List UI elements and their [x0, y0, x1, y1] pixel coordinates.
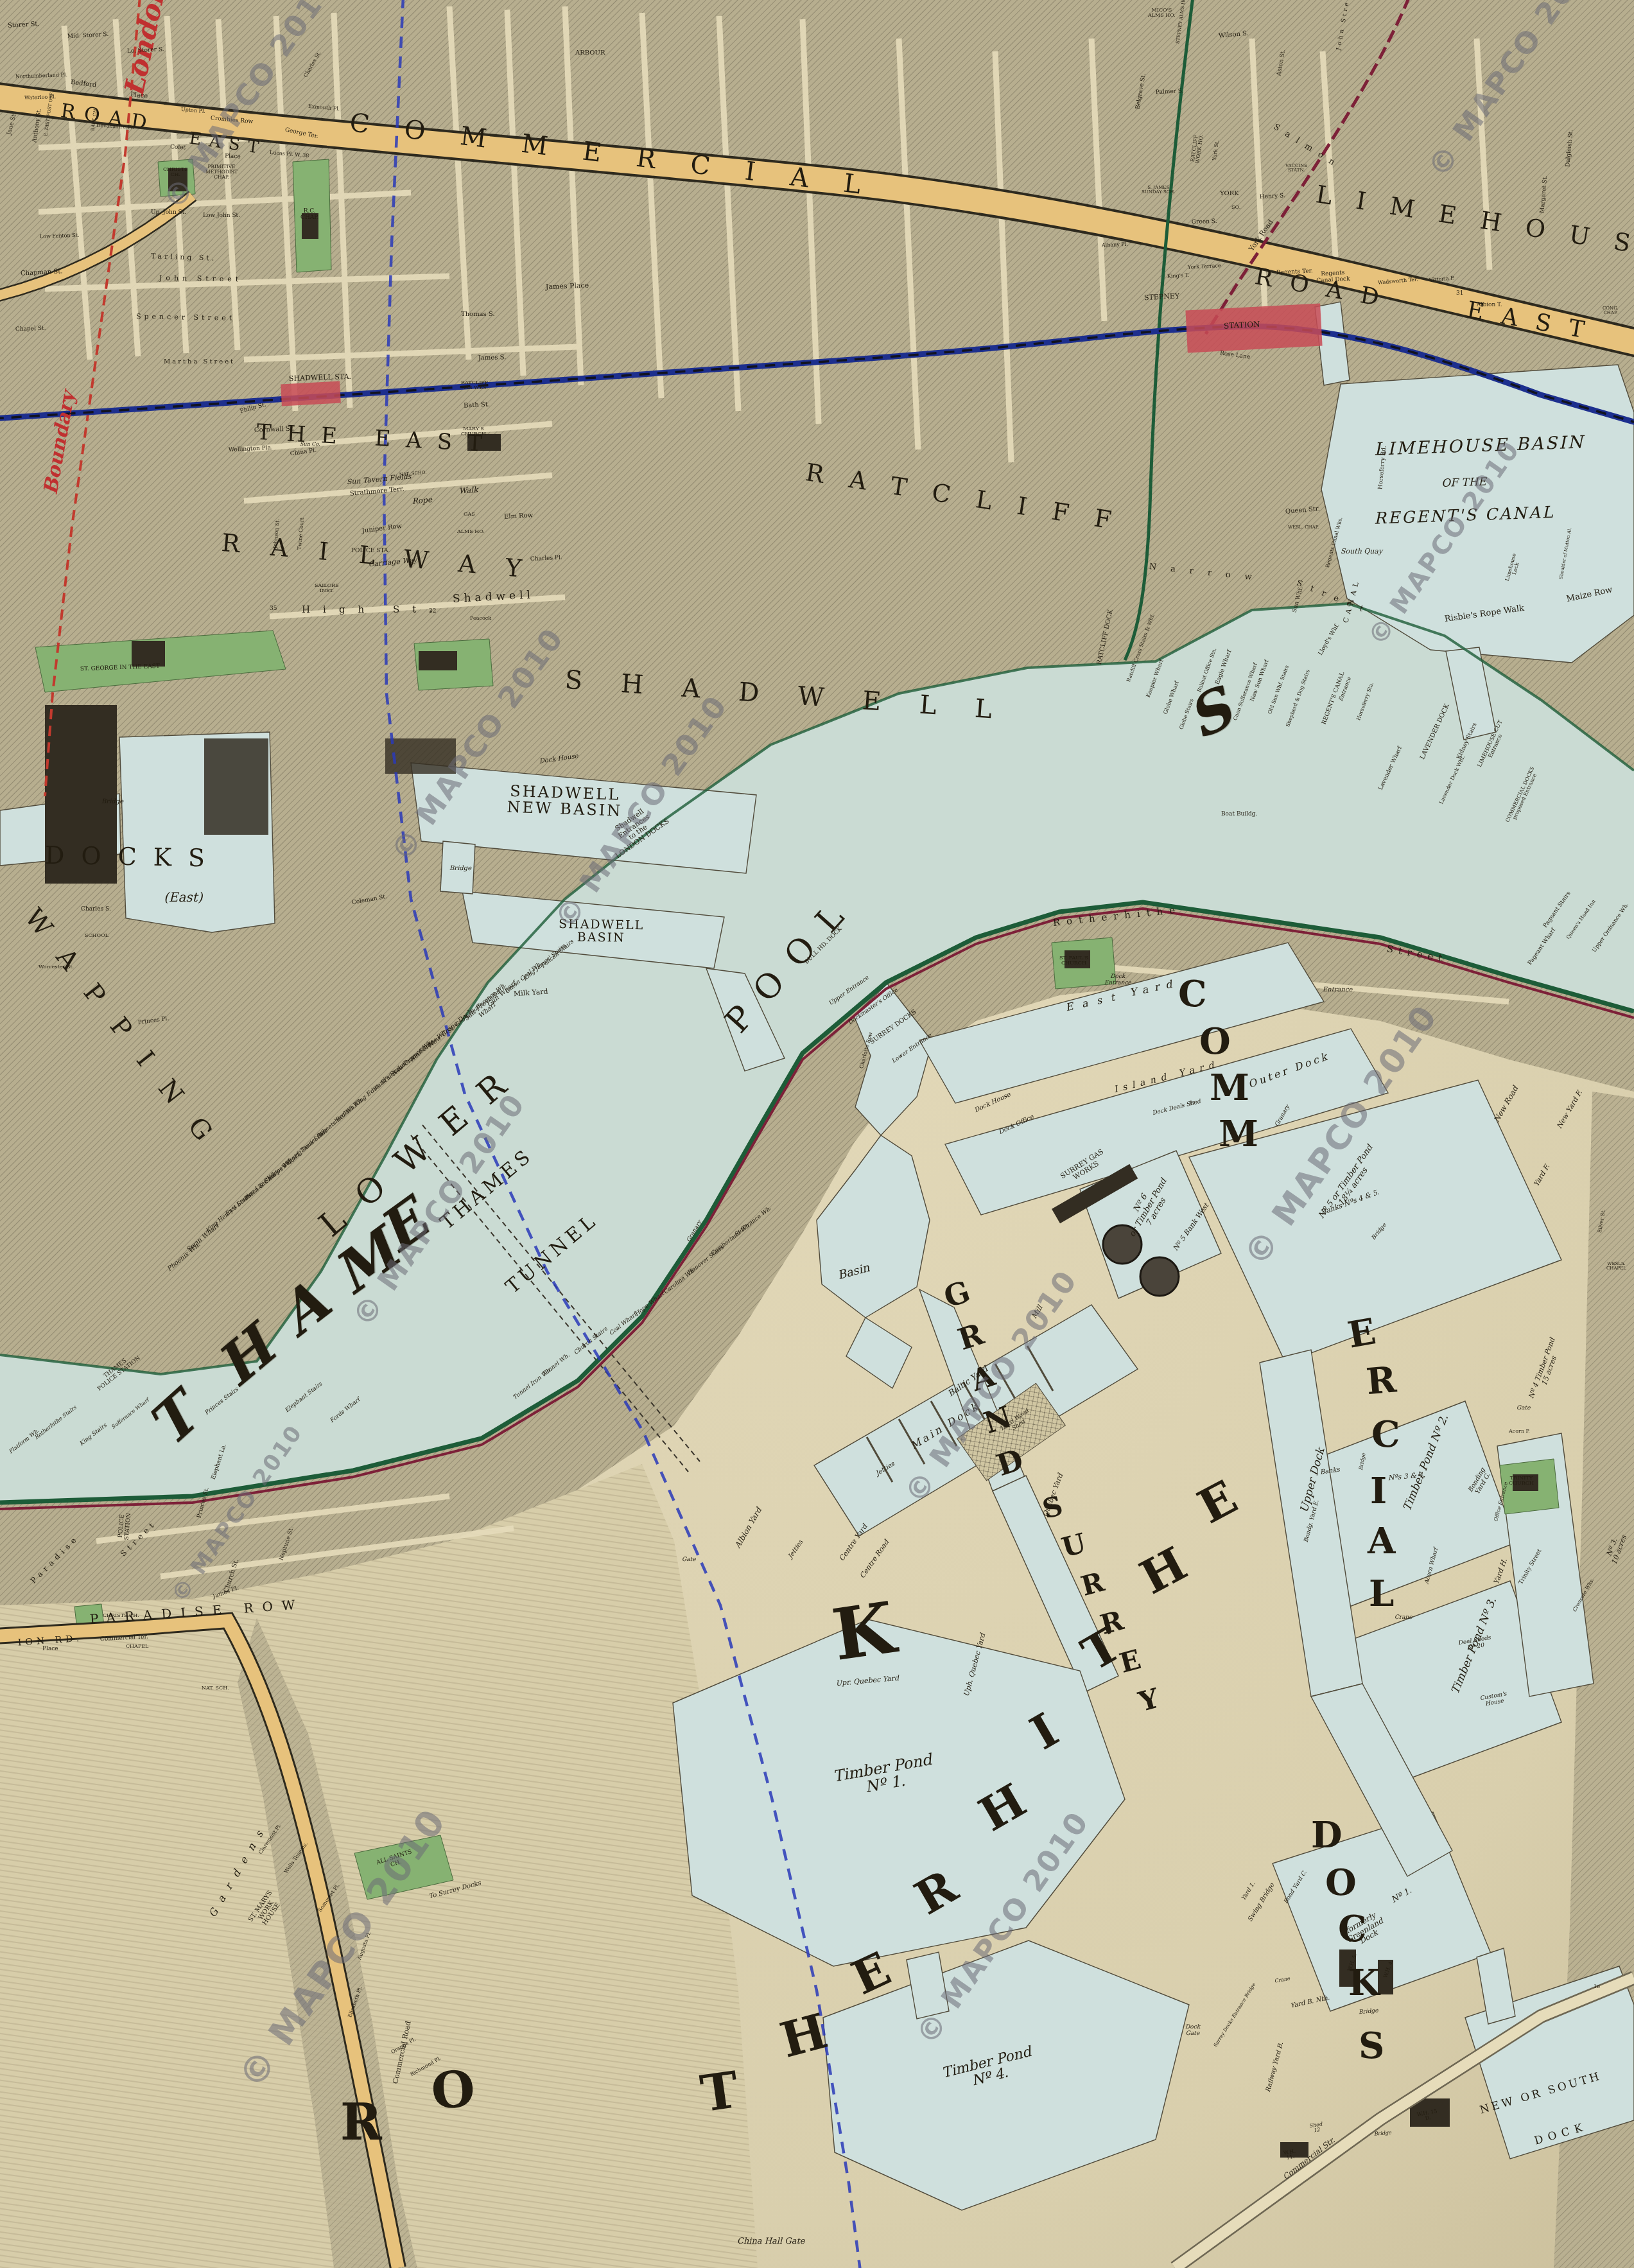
map-graphics — [0, 0, 1634, 2268]
shadwell-station-mark — [281, 381, 341, 406]
stepney-station-mark — [1185, 304, 1322, 353]
historical-map: ROADEASTCOMMERCIALROADEASTTHE EASTRAILWA… — [0, 0, 1634, 2268]
